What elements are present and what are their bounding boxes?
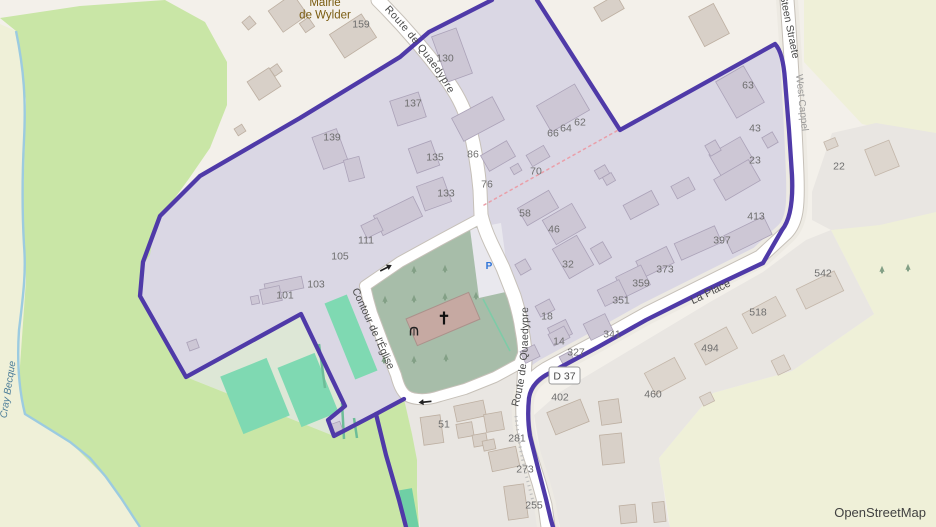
- svg-text:494: 494: [701, 343, 719, 355]
- svg-text:P: P: [486, 261, 493, 272]
- svg-text:46: 46: [548, 224, 560, 236]
- svg-text:359: 359: [632, 278, 650, 290]
- svg-text:103: 103: [307, 279, 325, 291]
- svg-text:62: 62: [574, 117, 586, 129]
- svg-text:101: 101: [276, 290, 294, 302]
- svg-text:32: 32: [562, 259, 574, 271]
- svg-text:Mairie: Mairie: [309, 0, 340, 9]
- svg-text:137: 137: [404, 98, 422, 110]
- svg-text:63: 63: [742, 80, 754, 92]
- svg-text:460: 460: [644, 389, 662, 401]
- svg-text:86: 86: [467, 149, 479, 161]
- svg-text:351: 351: [612, 295, 630, 307]
- svg-text:341: 341: [603, 329, 621, 341]
- svg-text:273: 273: [516, 464, 534, 476]
- svg-text:281: 281: [508, 433, 526, 445]
- svg-text:76: 76: [481, 179, 493, 191]
- svg-text:58: 58: [519, 208, 531, 220]
- svg-text:397: 397: [713, 235, 731, 247]
- svg-text:D 37: D 37: [553, 371, 575, 383]
- svg-text:OpenStreetMap: OpenStreetMap: [834, 505, 926, 520]
- svg-text:133: 133: [437, 188, 455, 200]
- svg-text:402: 402: [551, 392, 569, 404]
- svg-text:327: 327: [567, 347, 585, 359]
- svg-text:70: 70: [530, 166, 542, 178]
- svg-text:64: 64: [560, 123, 572, 135]
- svg-text:43: 43: [749, 123, 761, 135]
- svg-text:de Wylder: de Wylder: [299, 10, 351, 22]
- svg-text:22: 22: [833, 161, 845, 173]
- svg-text:518: 518: [749, 307, 767, 319]
- svg-text:139: 139: [323, 132, 341, 144]
- svg-text:23: 23: [749, 155, 761, 167]
- svg-text:159: 159: [352, 19, 370, 31]
- svg-text:255: 255: [525, 500, 543, 512]
- svg-text:135: 135: [426, 152, 444, 164]
- svg-text:413: 413: [747, 211, 765, 223]
- svg-text:111: 111: [358, 235, 374, 247]
- svg-text:105: 105: [331, 251, 349, 263]
- svg-text:542: 542: [814, 268, 832, 280]
- svg-text:66: 66: [547, 128, 559, 140]
- svg-text:51: 51: [438, 419, 450, 431]
- svg-text:14: 14: [553, 336, 565, 348]
- svg-text:18: 18: [541, 311, 553, 323]
- svg-text:373: 373: [656, 264, 674, 276]
